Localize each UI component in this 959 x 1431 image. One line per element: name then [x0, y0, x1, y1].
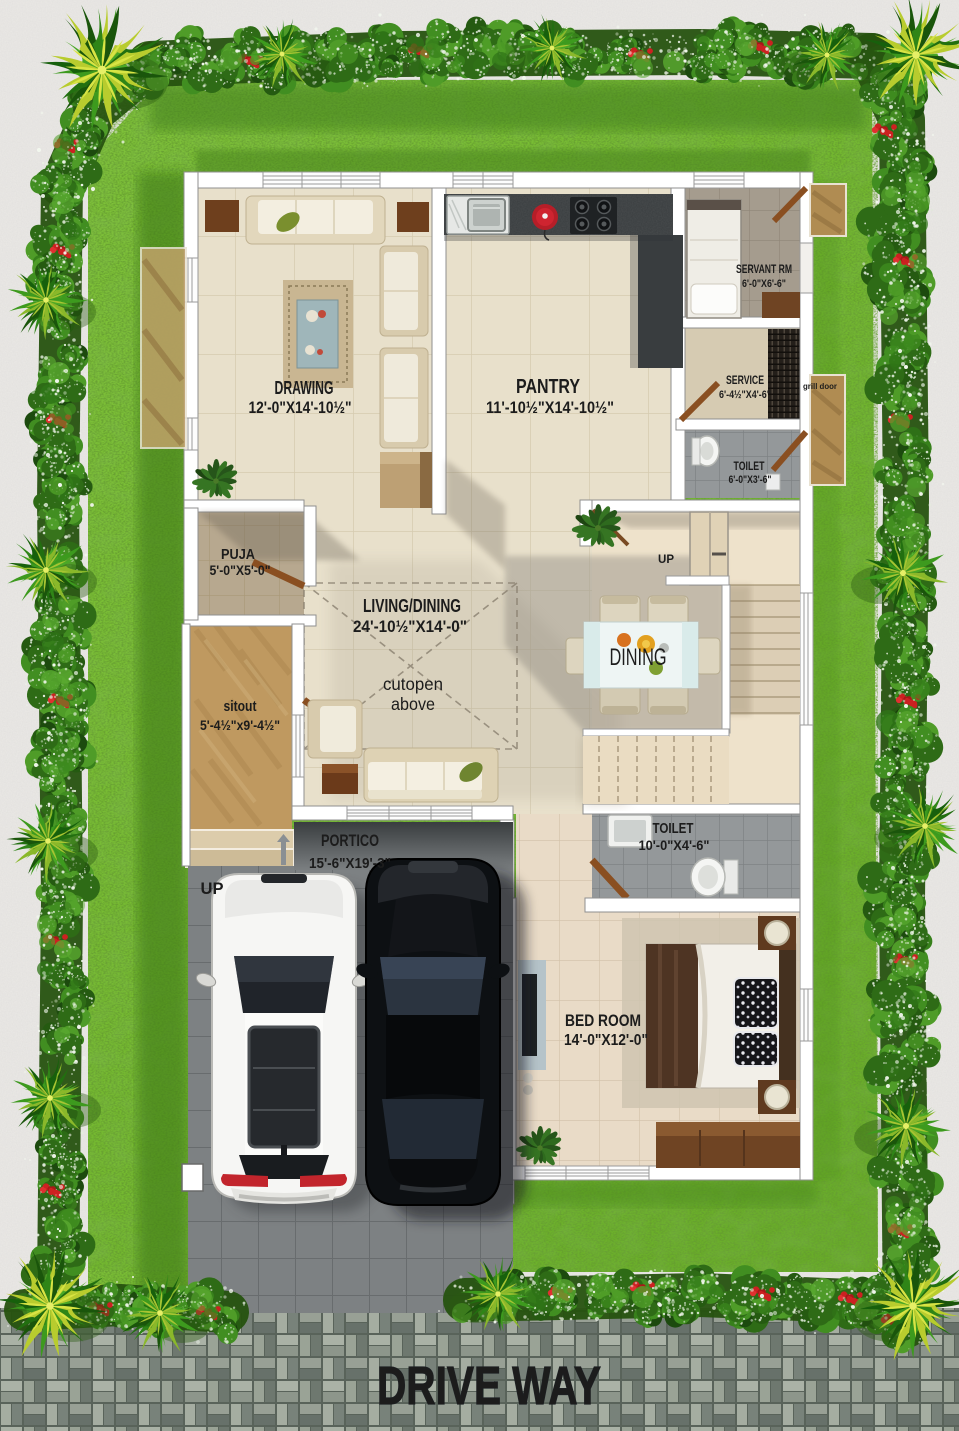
svg-text:11'-10½"X14'-10½": 11'-10½"X14'-10½" — [486, 398, 614, 417]
svg-text:PORTICO: PORTICO — [321, 832, 379, 850]
svg-text:SERVICE: SERVICE — [726, 375, 764, 387]
svg-text:above: above — [391, 694, 435, 714]
svg-text:5'-0"X5'-0": 5'-0"X5'-0" — [210, 563, 271, 578]
svg-text:UP: UP — [658, 552, 674, 566]
svg-text:6'-0"X3'-6": 6'-0"X3'-6" — [729, 474, 772, 486]
svg-text:DRAWING: DRAWING — [275, 378, 334, 398]
svg-text:sitout: sitout — [224, 698, 257, 715]
svg-text:cutopen: cutopen — [383, 674, 443, 694]
svg-text:6'-4½"X4'-6": 6'-4½"X4'-6" — [719, 389, 771, 401]
svg-text:TOILET: TOILET — [653, 821, 694, 837]
svg-text:SERVANT RM: SERVANT RM — [736, 264, 792, 276]
svg-text:6'-0"X6'-6": 6'-0"X6'-6" — [742, 278, 786, 290]
svg-text:5'-4½"x9'-4½": 5'-4½"x9'-4½" — [200, 718, 280, 733]
svg-text:BED ROOM: BED ROOM — [565, 1012, 641, 1030]
svg-text:DINING: DINING — [610, 644, 667, 671]
svg-text:PANTRY: PANTRY — [516, 376, 581, 398]
svg-text:TOILET: TOILET — [734, 461, 765, 473]
svg-text:grill door: grill door — [803, 381, 838, 391]
svg-text:10'-0"X4'-6": 10'-0"X4'-6" — [639, 838, 710, 853]
svg-text:LIVING/DINING: LIVING/DINING — [363, 595, 461, 616]
svg-text:UP: UP — [201, 879, 224, 898]
svg-text:24'-10½"X14'-0": 24'-10½"X14'-0" — [353, 617, 467, 636]
svg-text:15'-6"X19'-3": 15'-6"X19'-3" — [309, 855, 391, 872]
svg-text:12'-0"X14'-10½": 12'-0"X14'-10½" — [249, 398, 352, 417]
svg-text:14'-0"X12'-0": 14'-0"X12'-0" — [564, 1032, 648, 1049]
svg-text:PUJA: PUJA — [221, 546, 255, 563]
svg-text:DRIVE WAY: DRIVE WAY — [377, 1356, 601, 1416]
